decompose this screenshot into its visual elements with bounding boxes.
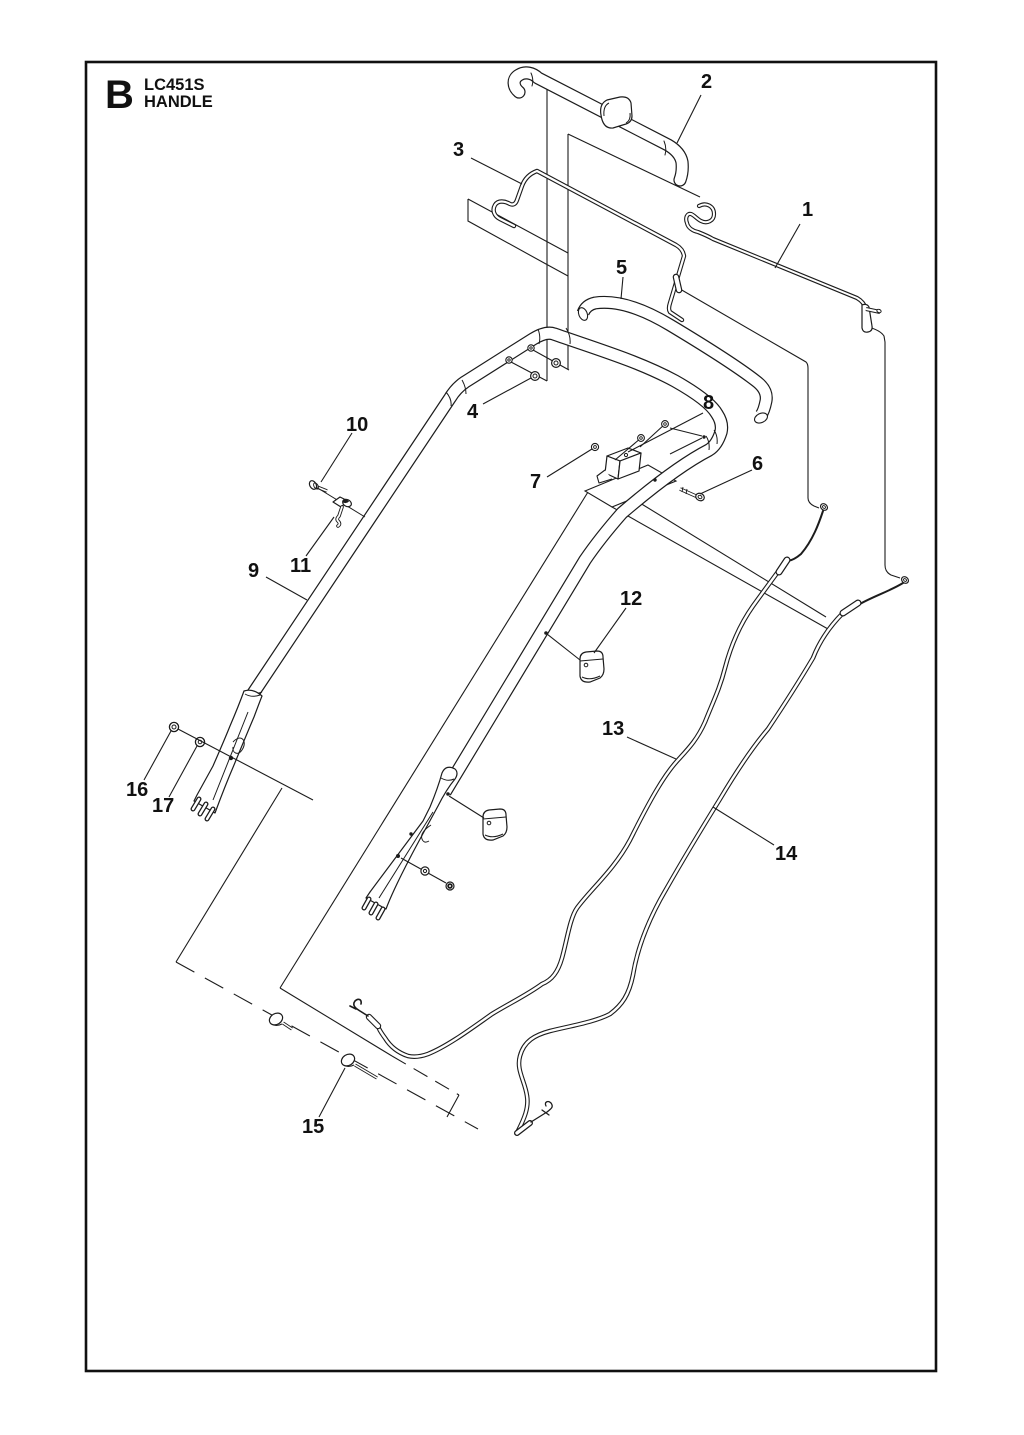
svg-text:9: 9 [248, 560, 259, 582]
svg-text:12: 12 [620, 588, 642, 610]
svg-text:10: 10 [346, 414, 368, 436]
svg-text:5: 5 [616, 257, 627, 279]
svg-text:15: 15 [302, 1116, 324, 1138]
svg-text:11: 11 [290, 555, 311, 577]
svg-text:4: 4 [467, 401, 479, 423]
svg-text:1: 1 [802, 199, 813, 221]
svg-text:2: 2 [701, 71, 712, 93]
svg-text:7: 7 [530, 471, 541, 493]
svg-text:LC451S: LC451S [144, 76, 205, 94]
svg-text:13: 13 [602, 718, 624, 740]
svg-text:16: 16 [126, 779, 148, 801]
svg-text:6: 6 [752, 453, 763, 475]
svg-text:HANDLE: HANDLE [144, 93, 213, 111]
svg-text:8: 8 [703, 392, 714, 414]
svg-text:3: 3 [453, 139, 464, 161]
svg-text:14: 14 [775, 843, 798, 865]
svg-text:17: 17 [152, 795, 174, 817]
svg-text:B: B [105, 73, 134, 117]
